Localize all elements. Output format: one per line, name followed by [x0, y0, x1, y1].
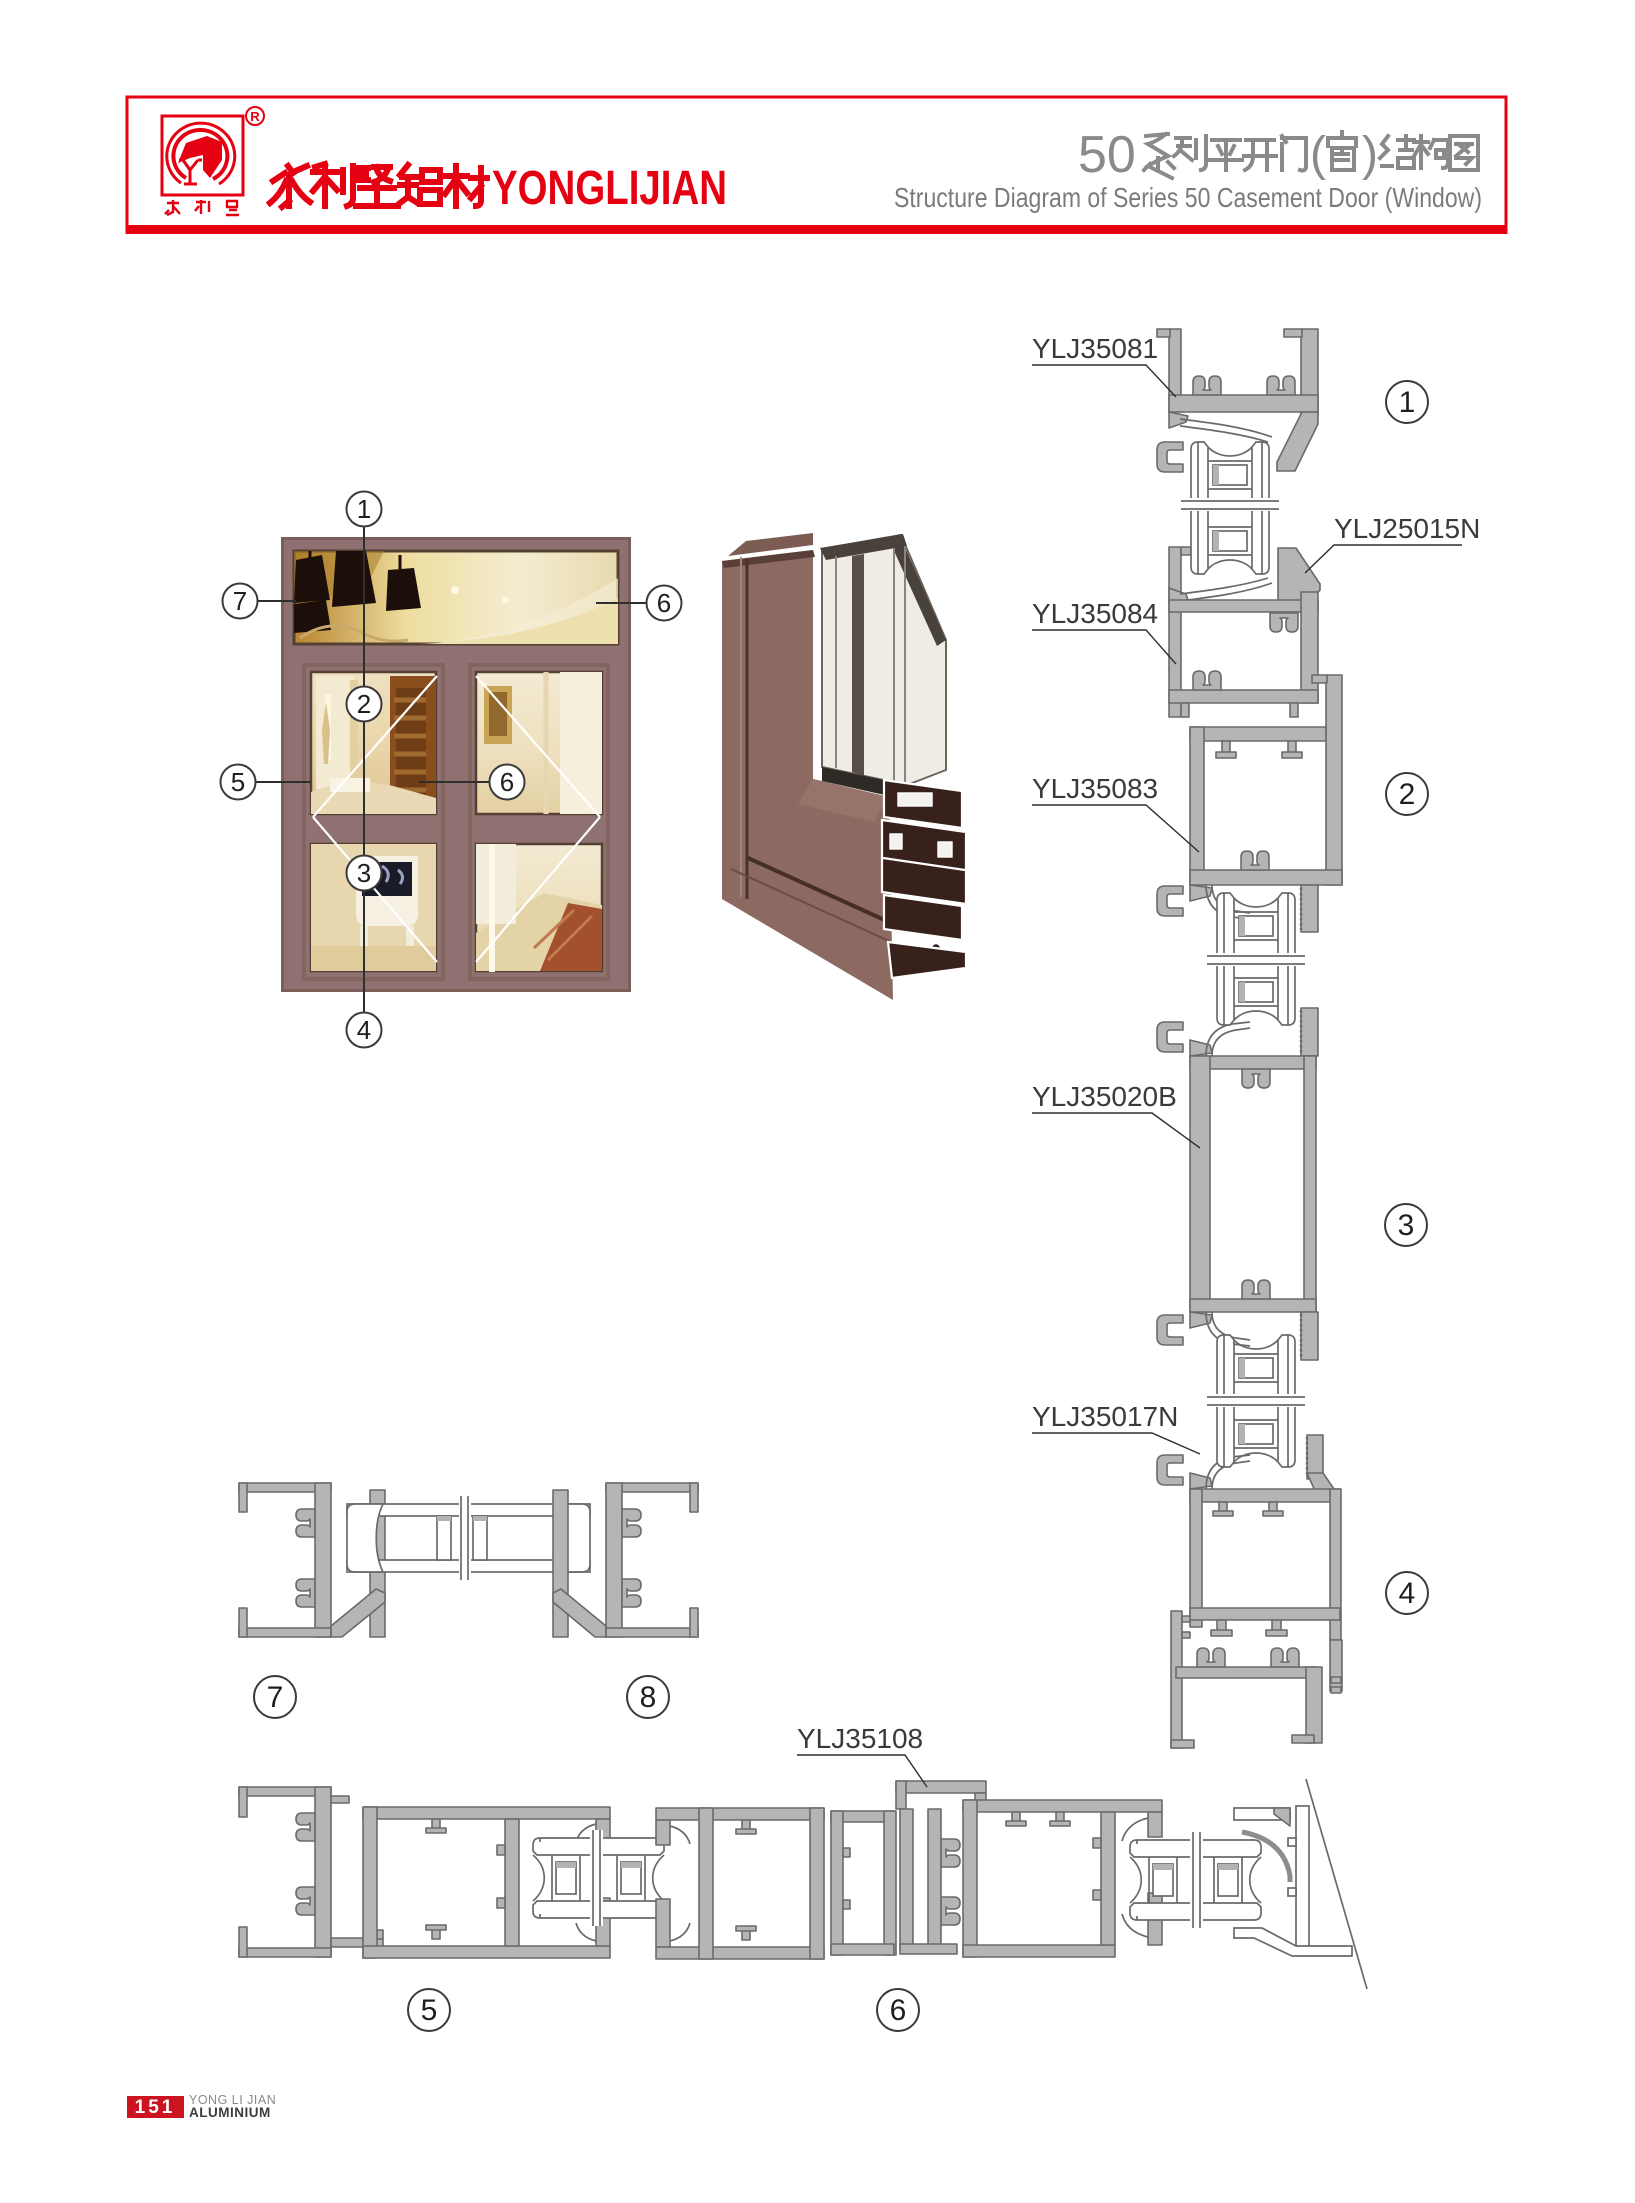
svg-text:7: 7	[233, 586, 247, 616]
svg-text:6: 6	[500, 767, 514, 797]
svg-text:YLJ35020B: YLJ35020B	[1032, 1081, 1177, 1112]
svg-text:5: 5	[421, 1994, 438, 2027]
svg-text:6: 6	[657, 588, 671, 618]
svg-text:4: 4	[1399, 1577, 1416, 1610]
svg-text:2: 2	[357, 689, 371, 719]
svg-text:YLJ35081: YLJ35081	[1032, 333, 1158, 364]
svg-text:3: 3	[1398, 1209, 1415, 1242]
svg-text:151: 151	[135, 2097, 176, 2118]
svg-text:(: (	[1310, 128, 1326, 181]
svg-text:YLJ35083: YLJ35083	[1032, 773, 1158, 804]
svg-text:YLJ25015N: YLJ25015N	[1334, 513, 1480, 544]
svg-text:R: R	[250, 109, 260, 124]
svg-text:2: 2	[1399, 778, 1416, 811]
svg-text:3: 3	[357, 858, 371, 888]
svg-text:YLJ35084: YLJ35084	[1032, 598, 1158, 629]
svg-text:YLJ35108: YLJ35108	[797, 1723, 923, 1754]
svg-text:8: 8	[640, 1681, 657, 1714]
svg-text:50: 50	[1078, 126, 1136, 184]
svg-text:1: 1	[357, 494, 371, 524]
svg-text:5: 5	[231, 767, 245, 797]
svg-text:6: 6	[890, 1994, 907, 2027]
svg-text:): )	[1362, 128, 1378, 181]
svg-text:1: 1	[1399, 386, 1416, 419]
svg-text:4: 4	[357, 1015, 371, 1045]
svg-text:ALUMINIUM: ALUMINIUM	[189, 2105, 271, 2120]
svg-text:YONGLIJIAN: YONGLIJIAN	[492, 162, 727, 215]
svg-text:7: 7	[267, 1681, 284, 1714]
svg-text:Structure Diagram of Series 50: Structure Diagram of Series 50 Casement …	[894, 182, 1482, 213]
svg-text:YLJ35017N: YLJ35017N	[1032, 1401, 1178, 1432]
